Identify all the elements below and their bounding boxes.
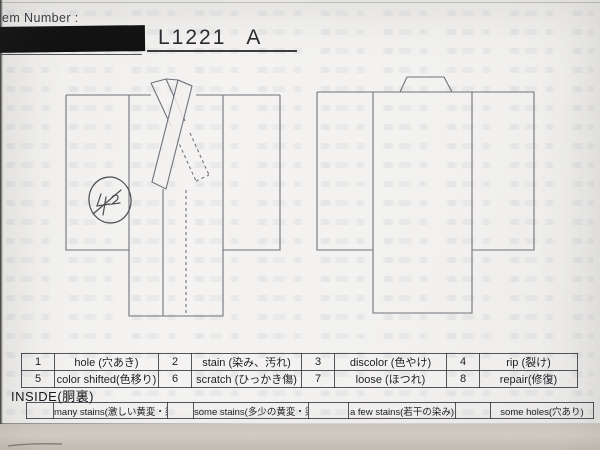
neck-tab — [400, 77, 452, 92]
checkbox-cell — [309, 403, 349, 419]
legend-row: 5 color shifted(色移り) 6 scratch (ひっかき傷) 7… — [22, 371, 578, 388]
legend-label: hole (穴あき) — [55, 354, 159, 371]
legend-num: 8 — [447, 371, 480, 388]
condition-legend-table: 1 hole (穴あき) 2 stain (染み、汚れ) 3 discolor … — [21, 353, 578, 388]
inside-option-label: some holes(穴あり) — [491, 403, 594, 419]
legend-label: color shifted(色移り) — [55, 371, 159, 388]
checkbox-cell — [168, 403, 194, 419]
desk-surface — [0, 424, 600, 450]
legend-num: 7 — [302, 371, 335, 388]
inside-option-label: a few stains(若干の染み) — [349, 403, 456, 419]
legend-label: loose (ほつれ) — [335, 371, 447, 388]
checkbox-cell — [27, 403, 54, 419]
legend-num: 3 — [302, 354, 335, 371]
checkbox-cell — [456, 403, 491, 419]
legend-num: 1 — [22, 354, 55, 371]
inside-option-label: some stains(多少の黄変・染み) — [194, 403, 309, 419]
legend-label: rip (裂け) — [480, 354, 578, 371]
inside-lining-table: many stains(激しい黄変・染み) some stains(多少の黄変・… — [26, 402, 594, 419]
legend-row: 1 hole (穴あき) 2 stain (染み、汚れ) 3 discolor … — [22, 354, 578, 371]
inside-row: many stains(激しい黄変・染み) some stains(多少の黄変・… — [27, 403, 594, 419]
photographed-inspection-sheet: em Number : L1221A — [0, 0, 600, 450]
kimono-back-outline — [317, 77, 534, 313]
legend-num: 6 — [159, 371, 192, 388]
legend-num: 4 — [447, 354, 480, 371]
legend-label: scratch (ひっかき傷) — [192, 371, 302, 388]
handwritten-annotation — [86, 174, 134, 225]
legend-label: repair(修復) — [480, 371, 578, 388]
legend-num: 5 — [22, 371, 55, 388]
legend-num: 2 — [159, 354, 192, 371]
legend-label: discolor (色やけ) — [335, 354, 447, 371]
kimono-front-outline — [66, 79, 280, 316]
inside-option-label: many stains(激しい黄変・染み) — [54, 403, 168, 419]
legend-label: stain (染み、汚れ) — [192, 354, 302, 371]
